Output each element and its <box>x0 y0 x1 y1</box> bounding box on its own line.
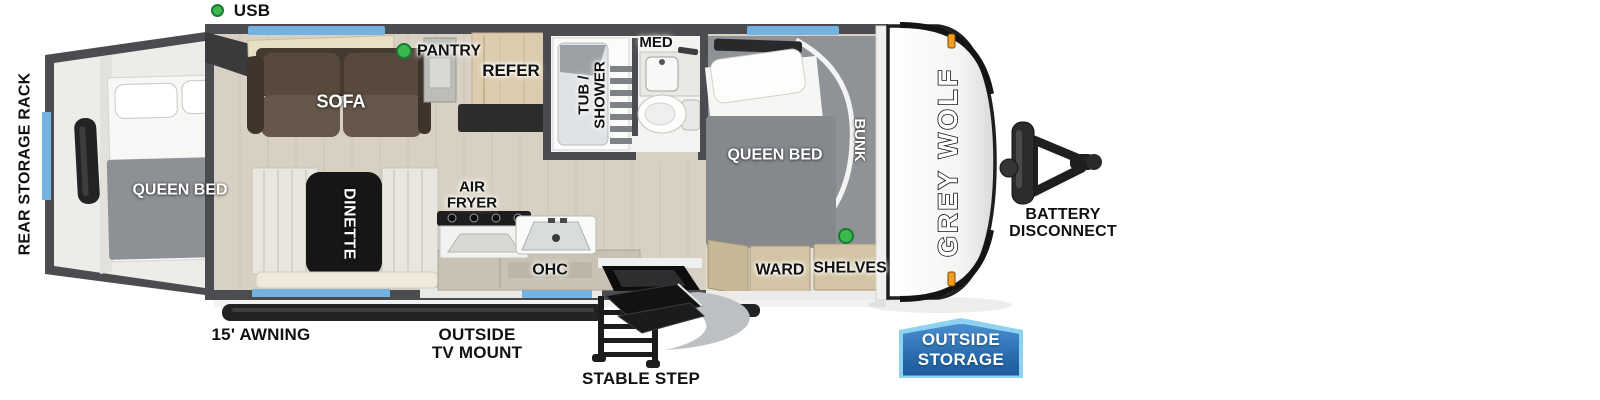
tub-shower-line2: SHOWER <box>592 61 608 129</box>
air-fryer-line1: AIR <box>447 179 497 195</box>
outside-storage-badge: OUTSIDE STORAGE <box>899 318 1023 378</box>
outside-tv-mount-line1: OUTSIDE <box>432 326 522 344</box>
air-fryer-label: AIR FRYER <box>447 179 497 211</box>
refer-label: REFER <box>482 62 540 80</box>
rear-window <box>42 112 51 200</box>
med-cabinet-label: MED <box>639 35 672 51</box>
kitchen-sink <box>516 216 596 254</box>
pantry-label: PANTRY <box>417 44 481 61</box>
top-window-right <box>747 26 839 35</box>
dinette-label: DINETTE <box>340 188 357 260</box>
rear-rack-item <box>74 117 100 204</box>
marker-light-bottom <box>948 272 955 286</box>
outside-storage-line2: STORAGE <box>918 350 1005 369</box>
battery-disconnect-label: BATTERY DISCONNECT <box>1009 207 1117 241</box>
awning-label: 15' AWNING <box>212 326 311 344</box>
usb-dot-legend <box>211 4 224 17</box>
tub-shower-line1: TUB / <box>576 61 592 129</box>
top-window-left <box>248 26 385 35</box>
bottom-window-right <box>522 290 592 298</box>
ward-label: WARD <box>756 263 805 280</box>
hitch-assembly <box>1000 122 1102 204</box>
battery-disconnect-line1: BATTERY <box>1009 207 1117 224</box>
stable-step-label: STABLE STEP <box>582 370 700 388</box>
bathroom-sink <box>640 47 702 96</box>
usb-dot-front-bedroom <box>839 229 853 243</box>
outside-storage-badge-inner: OUTSIDE STORAGE <box>903 324 1019 376</box>
toilet <box>638 95 700 133</box>
battery-disconnect-line2: DISCONNECT <box>1009 224 1117 241</box>
outside-storage-line1: OUTSIDE <box>922 330 1000 349</box>
ohc-label: OHC <box>532 263 568 280</box>
grey-wolf-logo: GREY WOLF <box>933 67 963 257</box>
shelves-label: SHELVES <box>813 261 887 278</box>
outside-tv-mount-label: OUTSIDE TV MOUNT <box>432 326 522 362</box>
sofa-label: SOFA <box>316 93 365 112</box>
bottom-window-left <box>252 289 390 297</box>
rear-queen-bed-label: QUEEN BED <box>132 183 227 200</box>
tub-shower-label: TUB / SHOWER <box>576 61 608 129</box>
front-cap: GREY WOLF <box>876 25 995 300</box>
outside-tv-mount-line2: TV MOUNT <box>432 344 522 362</box>
floorplan-canvas: GREY WOLF <box>0 0 1600 400</box>
marker-light-top <box>948 34 955 48</box>
air-fryer-line2: FRYER <box>447 195 497 211</box>
usb-dot-pantry <box>397 44 411 58</box>
rear-storage-rack-label: REAR STORAGE RACK <box>18 73 35 256</box>
bed-foot-cabinet <box>708 240 748 296</box>
usb-legend-label: USB <box>234 2 271 20</box>
front-queen-blanket <box>706 116 836 246</box>
bathroom <box>543 28 708 162</box>
bunk-label: BUNK <box>851 118 867 161</box>
front-queen-bed-label: QUEEN BED <box>727 148 822 165</box>
